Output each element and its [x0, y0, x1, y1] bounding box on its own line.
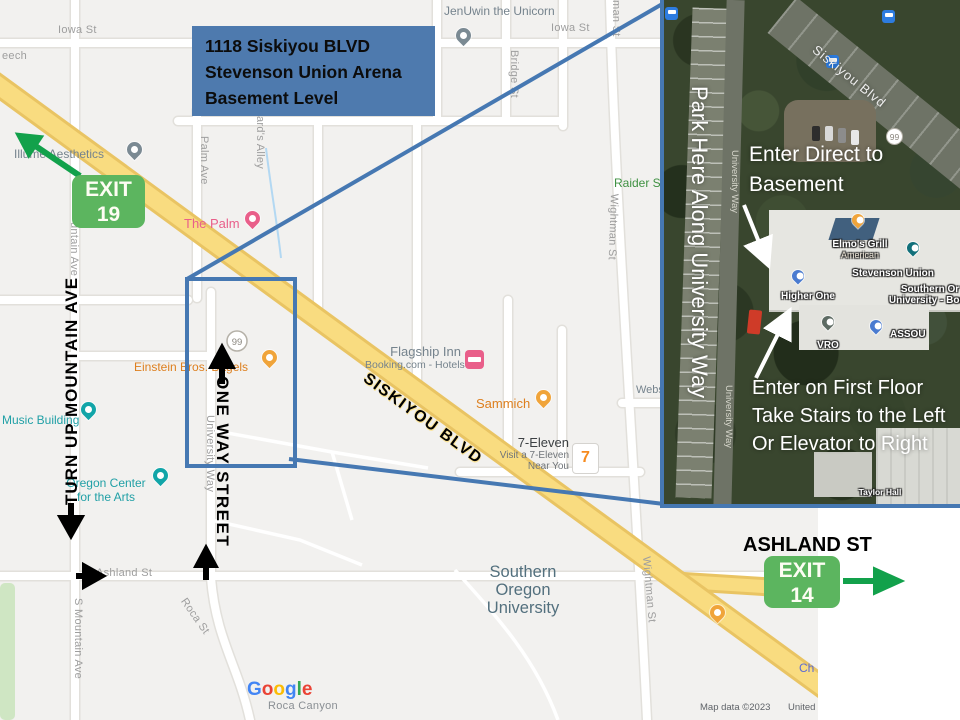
bus-stop-icon[interactable] [665, 7, 678, 20]
exit19-word: EXIT [72, 177, 145, 202]
highlight-rectangle [185, 277, 297, 468]
elmos-type: American [828, 250, 892, 260]
title-line1: 1118 Siskiyou BLVD [205, 33, 435, 59]
exit14-number: 14 [764, 583, 840, 608]
right-arrow-icon [85, 567, 101, 585]
bookstore-line2: University - Book [880, 295, 960, 306]
directions-slide: 99 Iowa St Iowa St eech Palm Ave ard's A… [0, 0, 960, 720]
basement-note-line1: Enter Direct to [749, 140, 883, 170]
taylor-hall-label[interactable]: Taylor Hall [852, 487, 908, 497]
title-line3: Basement Level [205, 85, 435, 111]
first-floor-note-line2: Take Stairs to the Left [752, 402, 945, 430]
exit-19-sign: EXIT 19 [72, 175, 145, 228]
exit19-arrow-icon [20, 136, 39, 153]
vro-label[interactable]: VRO [814, 340, 842, 351]
route-99-shield-inset: 99 [886, 128, 903, 145]
down-arrow-icon [62, 518, 80, 534]
up-arrow-icon [198, 550, 214, 565]
basement-note: Enter Direct to Basement [749, 140, 883, 200]
first-floor-note-line1: Enter on First Floor [752, 374, 945, 402]
basement-entrance-arrow [744, 205, 767, 262]
elmos-name: Elmo's Grill [828, 239, 892, 250]
elmos-label[interactable]: Elmo's Grill American [828, 239, 892, 260]
turn-up-annotation: TURN UP MOUNTAIN AVE [62, 273, 82, 505]
bus-stop-icon[interactable] [882, 10, 895, 23]
satellite-inset: 99 Siskiyou Blvd University Way Universi… [660, 0, 960, 508]
first-floor-entrance-arrow [756, 314, 788, 378]
higher-one-label[interactable]: Higher One [778, 291, 838, 302]
stevenson-label[interactable]: Stevenson Union [848, 268, 938, 279]
first-floor-note-line3: Or Elevator to Right [752, 430, 945, 458]
first-floor-note: Enter on First Floor Take Stairs to the … [752, 374, 945, 458]
assou-label[interactable]: ASSOU [890, 329, 942, 340]
inset-university-way-a: University Way [729, 150, 740, 212]
title-line2: Stevenson Union Arena [205, 59, 435, 85]
exit19-number: 19 [72, 202, 145, 227]
bookstore-label[interactable]: Southern Or University - Book [880, 284, 960, 306]
ashland-st-annotation: ASHLAND ST [743, 534, 872, 557]
bookstore-line1: Southern Or [880, 284, 960, 295]
exit14-word: EXIT [764, 558, 840, 583]
inset-university-way-b: University Way [723, 385, 734, 447]
basement-note-line2: Basement [749, 170, 883, 200]
exit14-arrow-icon [876, 571, 898, 591]
park-here-note: Park Here Along University Way [686, 86, 712, 422]
one-way-annotation: ONE WAY STREET [212, 376, 232, 542]
title-box: 1118 Siskiyou BLVD Stevenson Union Arena… [192, 26, 435, 116]
exit-14-sign: EXIT 14 [764, 556, 840, 608]
